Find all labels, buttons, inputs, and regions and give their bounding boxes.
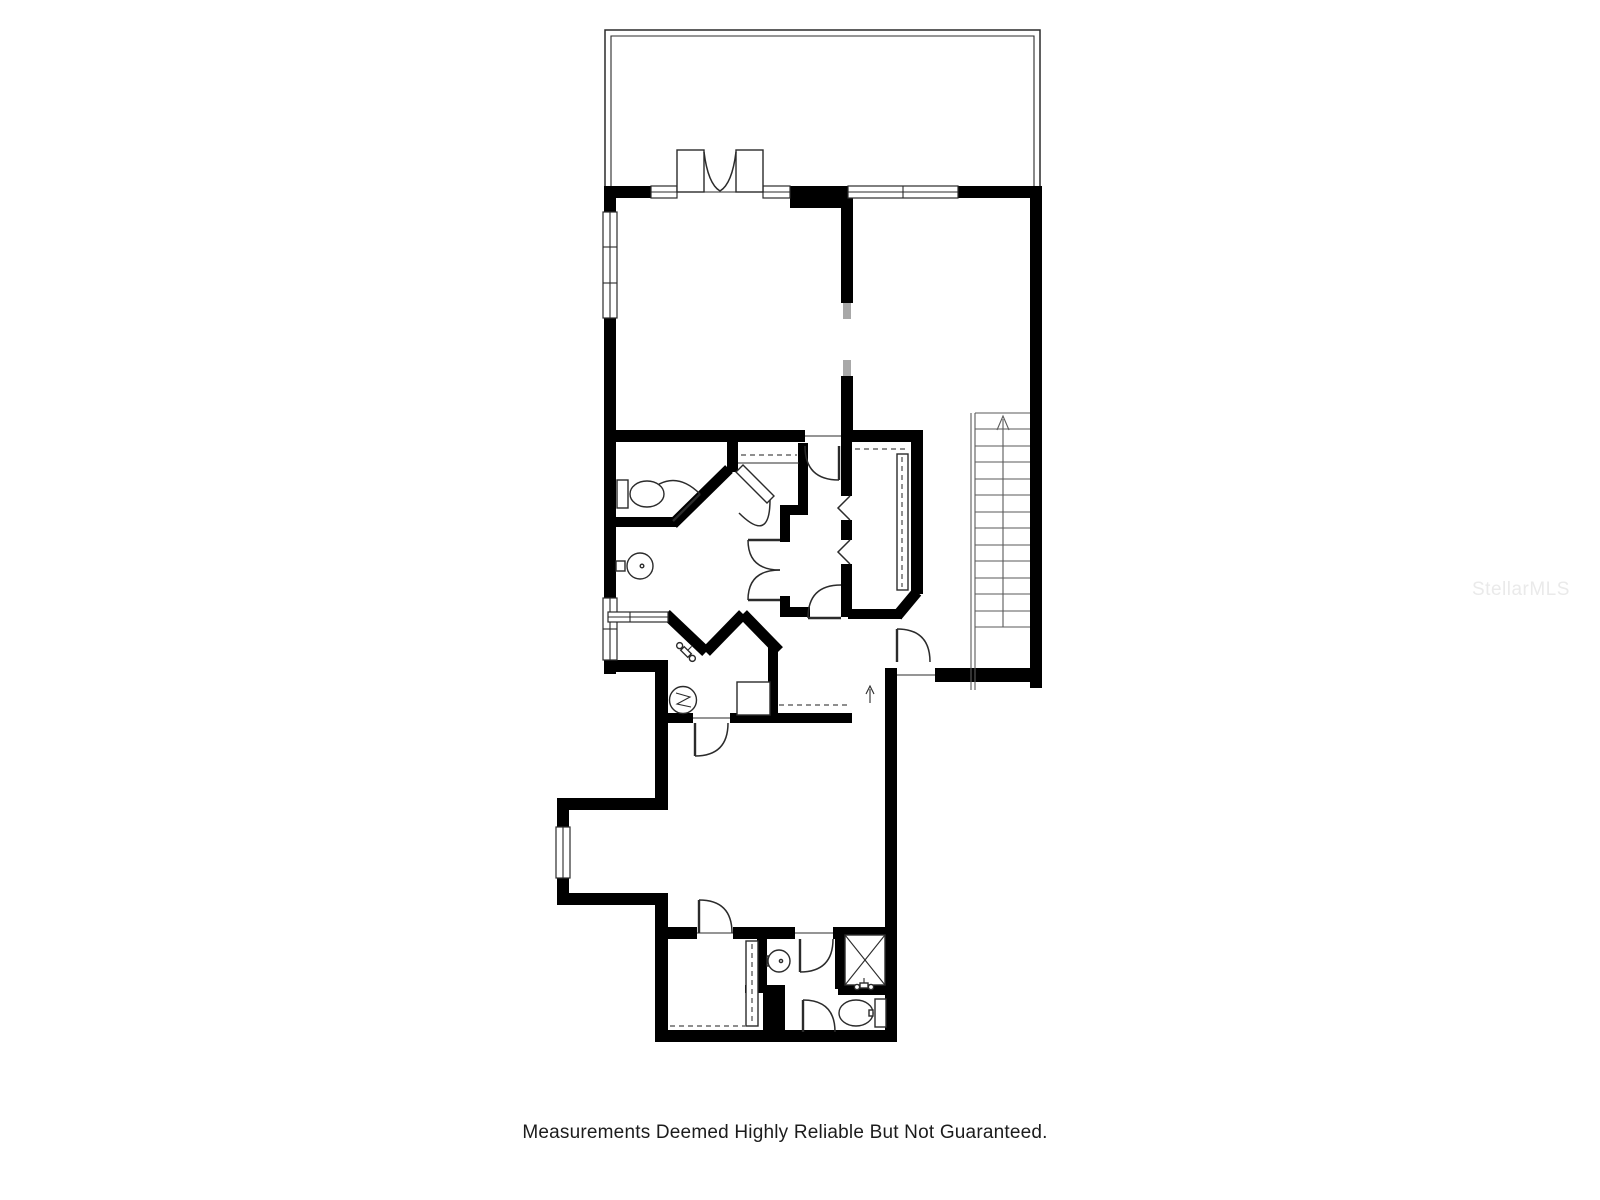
- water-heater: [670, 687, 697, 714]
- diagonal-walls: [666, 469, 917, 652]
- stairs: [971, 413, 1030, 690]
- stairs-up-arrow: [997, 416, 1009, 627]
- pedestal-sink-master: [616, 553, 653, 579]
- sidelight-left: [651, 186, 677, 198]
- wall-opening-jambs: [843, 303, 851, 376]
- dressing-reach-in-closet: [738, 455, 799, 463]
- walkin-closet-shelf: [855, 449, 909, 590]
- double-doors-dressing: [748, 540, 780, 600]
- shower-glass-panel: [608, 612, 668, 622]
- toilet-lower: [839, 999, 886, 1027]
- door-dressing-closet: [736, 465, 774, 526]
- shower-stall-lower: [845, 935, 885, 990]
- patio-outline: [605, 30, 1040, 190]
- appliance-box: [737, 682, 770, 715]
- window-bath-left: [603, 598, 617, 660]
- floor-plan-image: [0, 0, 1600, 1200]
- door-hall-landing: [808, 585, 841, 618]
- window-entry-bumpout: [556, 827, 570, 878]
- door-utility: [693, 718, 730, 756]
- toilet-master: [617, 480, 664, 508]
- door-lower-wc: [803, 1000, 835, 1032]
- disclaimer-text: Measurements Deemed Highly Reliable But …: [0, 1122, 1570, 1144]
- window-bedroom-left: [603, 212, 617, 318]
- door-greatroom: [897, 629, 935, 675]
- door-lower-closet: [697, 900, 733, 933]
- door-lower-bath: [795, 933, 833, 972]
- floor-plan-svg: [0, 0, 1600, 1200]
- lower-closet-shelf: [670, 941, 758, 1026]
- watermark-text: StellarMLS: [1472, 579, 1570, 601]
- entry-up-arrow: [866, 686, 874, 703]
- sidelight-right: [763, 186, 790, 198]
- window-top-right: [848, 186, 958, 198]
- door-bedroom-hall: [805, 436, 841, 480]
- french-doors: [677, 150, 763, 192]
- sink-lower-bath: [767, 950, 790, 972]
